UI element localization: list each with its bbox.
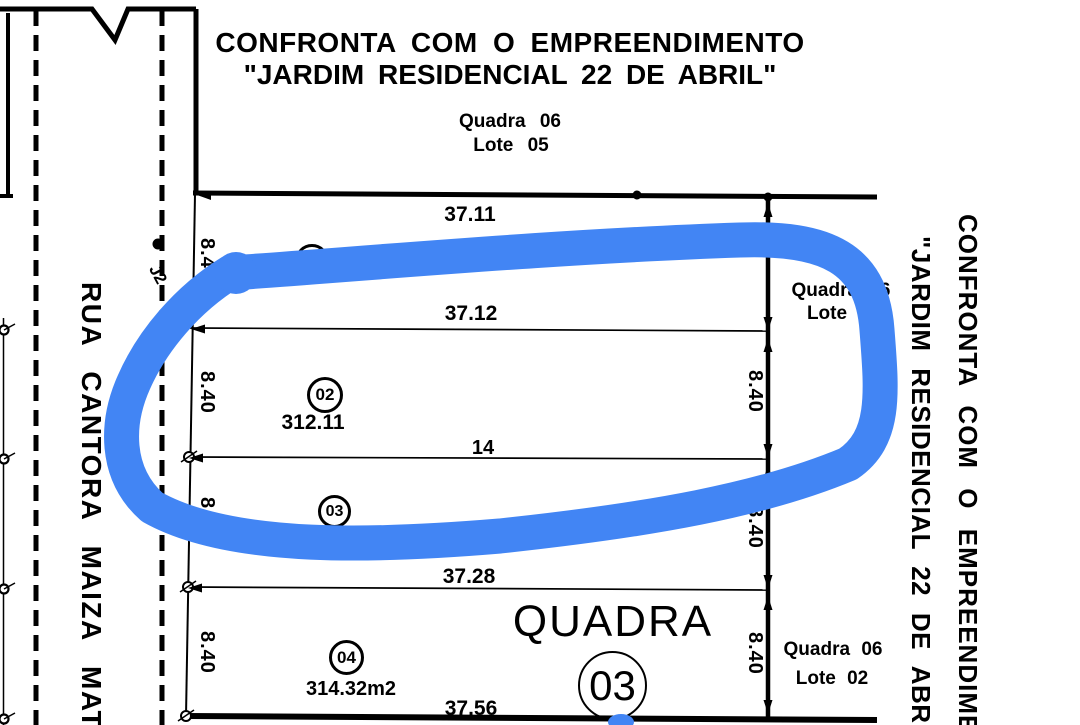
highlight-pen-start-blob: [215, 252, 257, 294]
plat-drawing-page: CONFRONTA COM O EMPREENDIMENTO "JARDIM R…: [0, 0, 1080, 725]
highlight-stray-dot: [608, 714, 634, 725]
blue-highlight-annotation: [0, 0, 1080, 725]
